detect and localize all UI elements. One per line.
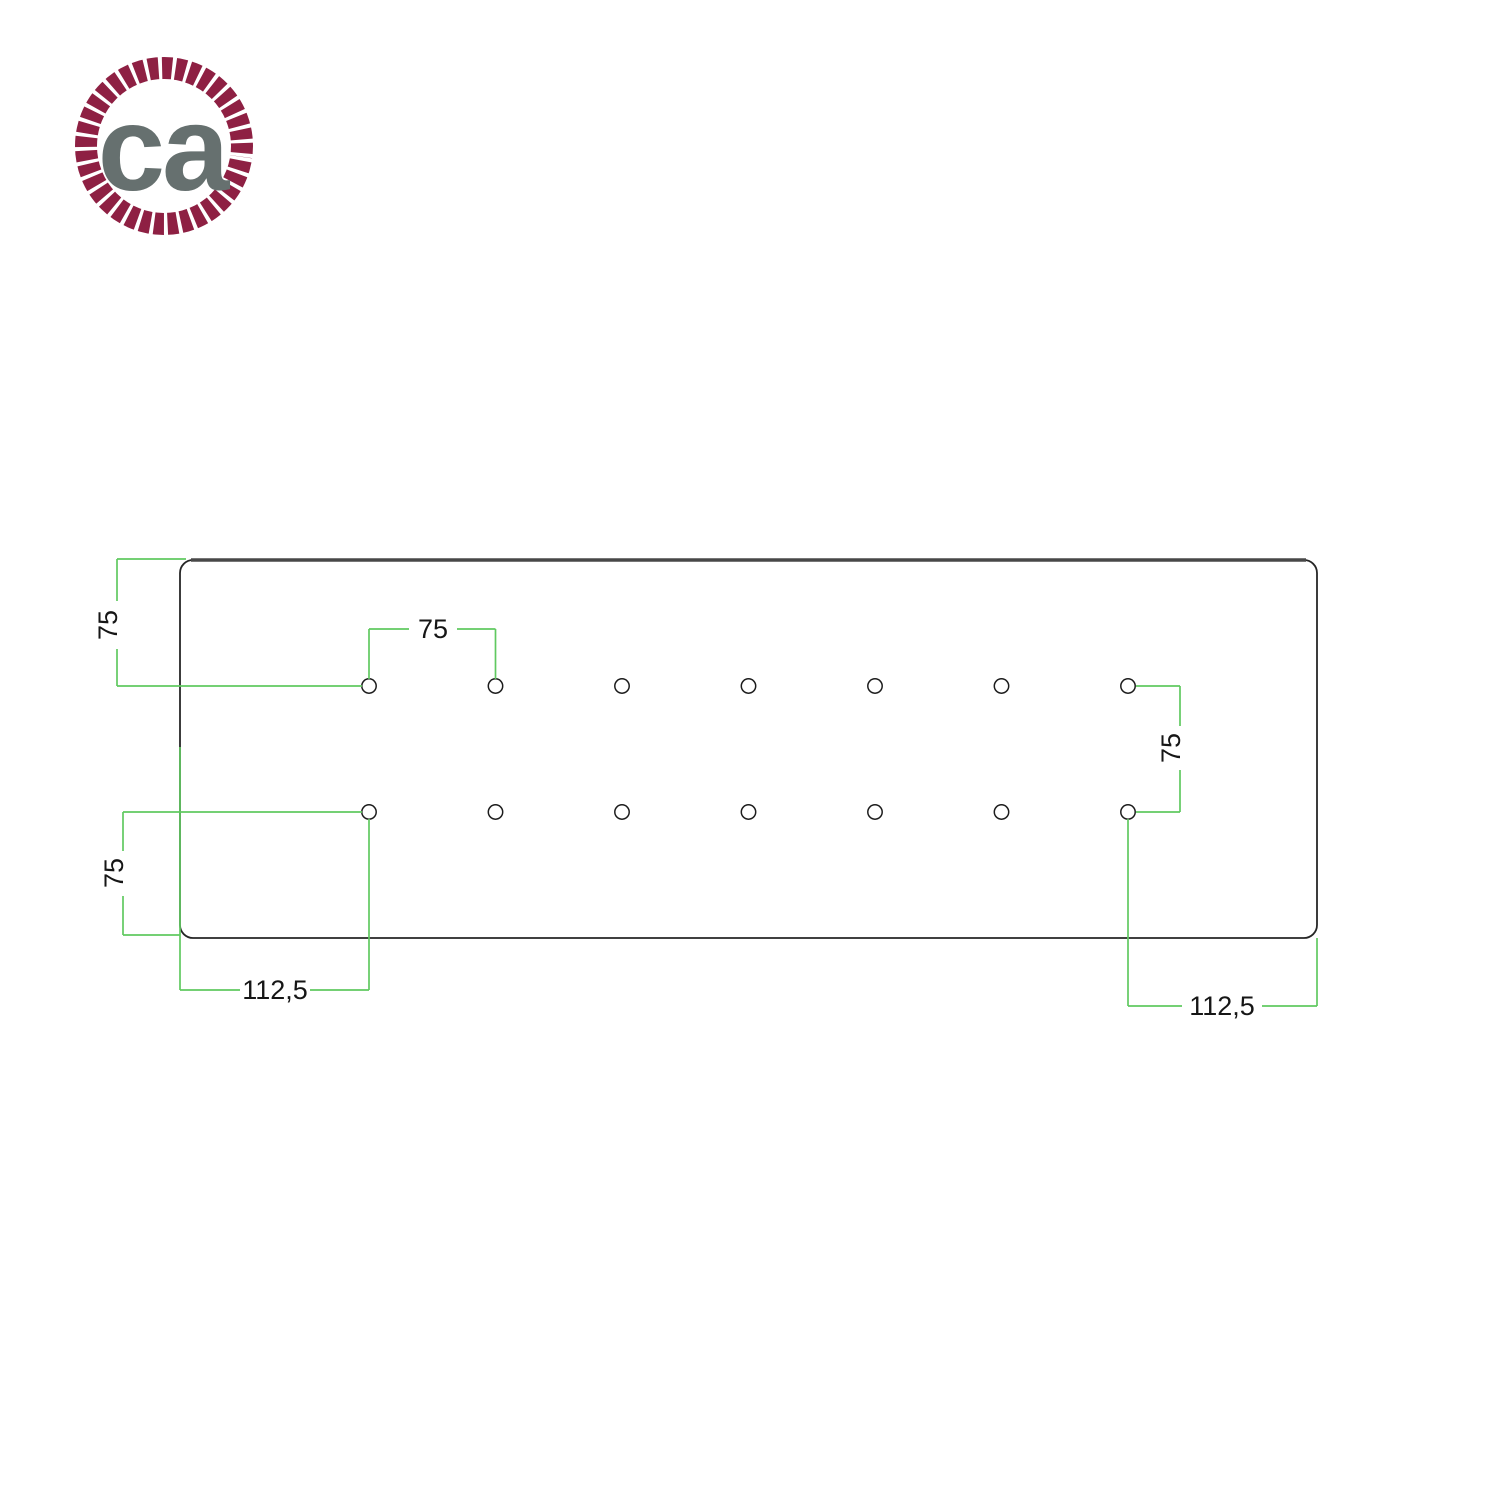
hole bbox=[994, 679, 1008, 693]
brand-logo: ca bbox=[76, 58, 252, 234]
hole bbox=[994, 805, 1008, 819]
hole bbox=[488, 679, 502, 693]
dim-label-75-left-lower: 75 bbox=[99, 858, 129, 888]
hole bbox=[741, 805, 755, 819]
dim-label-112-5-right: 112,5 bbox=[1189, 991, 1255, 1021]
hole bbox=[615, 805, 629, 819]
logo-text: ca bbox=[98, 80, 231, 216]
plate-drawing bbox=[180, 560, 1317, 938]
dim-label-75-right: 75 bbox=[1156, 733, 1186, 763]
hole bbox=[868, 679, 882, 693]
dim-label-75-top: 75 bbox=[418, 614, 448, 644]
dim-label-75-top-left: 75 bbox=[93, 610, 123, 640]
hole bbox=[741, 679, 755, 693]
dim-label-112-5-left: 112,5 bbox=[242, 975, 308, 1005]
hole bbox=[868, 805, 882, 819]
hole bbox=[488, 805, 502, 819]
hole bbox=[1121, 679, 1135, 693]
hole bbox=[362, 805, 376, 819]
plate-outline bbox=[180, 560, 1317, 938]
technical-drawing-canvas: ca 75 75 75 bbox=[0, 0, 1500, 1500]
hole bbox=[362, 679, 376, 693]
hole bbox=[1121, 805, 1135, 819]
hole bbox=[615, 679, 629, 693]
